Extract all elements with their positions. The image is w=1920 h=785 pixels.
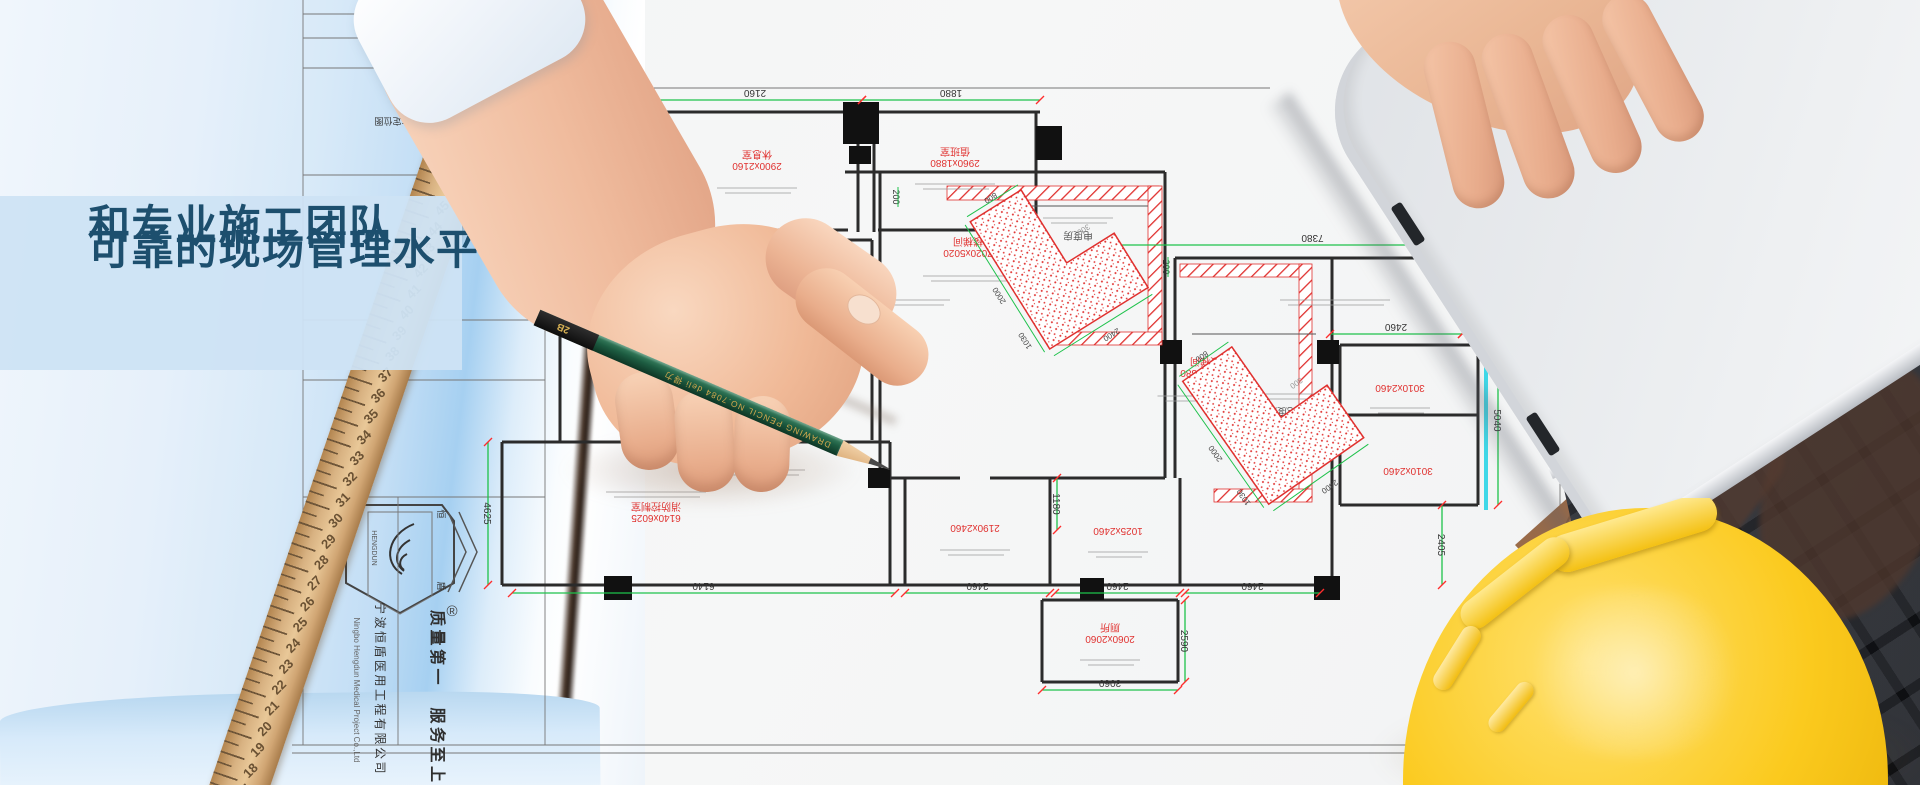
room-label: 2900x2160休息室 <box>732 148 782 171</box>
hatched-wall <box>1148 186 1162 344</box>
dimension-label: 7380 <box>1301 232 1324 243</box>
vertical-slogan-char: 量 <box>428 629 446 645</box>
title-block-text: Ningbo Hengdun Medical Project Co.,Ltd <box>352 618 361 763</box>
headline-line-2: 和专业施工团队 <box>88 196 393 256</box>
vertical-slogan-char: 工 <box>373 689 387 701</box>
column <box>1160 340 1182 364</box>
dimension-label: 2590 <box>1178 630 1189 653</box>
vertical-slogan-char: 一 <box>428 668 445 684</box>
dimension-label: 1180 <box>1050 493 1061 515</box>
dimension-label: 3060 <box>1098 677 1121 688</box>
room-label: 2960x1880值班室 <box>930 145 980 168</box>
title-block-text: ® <box>446 603 457 620</box>
dimension-label: 2460 <box>1106 580 1129 591</box>
column <box>1080 578 1104 600</box>
title-block-text: 盾 <box>436 581 446 590</box>
vertical-slogan-char: 宁 <box>373 602 388 614</box>
dimension-label: 1880 <box>939 87 962 98</box>
column <box>604 576 632 600</box>
hatched-wall <box>1180 264 1310 277</box>
dimension-label: 200 <box>891 189 901 204</box>
column <box>1036 126 1062 160</box>
vertical-slogan-char: 医 <box>373 660 387 672</box>
column <box>843 102 879 144</box>
dimension-label: 2160 <box>743 87 766 98</box>
stair-dimension: 2000 <box>1206 443 1224 463</box>
vertical-slogan-char: 司 <box>373 761 387 773</box>
vertical-slogan-char: 限 <box>373 732 387 744</box>
vertical-slogan-char: 质 <box>428 610 447 626</box>
dimension-label: 6140 <box>692 580 715 591</box>
hengdun-logo <box>346 505 477 614</box>
title-block-text: HENGDUN <box>370 530 377 565</box>
dimension-label: 2460 <box>1241 580 1264 591</box>
dimension-label: 200 <box>1161 259 1171 274</box>
title-block-text: 恒 <box>436 509 447 518</box>
room-label: 1025x2460 <box>1093 525 1143 536</box>
keyboard-keys: `1234567890-=deletetabQWERTYUIOP[]\capsA… <box>1718 0 1920 415</box>
stair-dimension: 2400 <box>1319 478 1339 496</box>
vertical-slogan-char: 至 <box>428 746 446 762</box>
stair-dimension: 1030 <box>1016 330 1033 350</box>
room-label: 2190x2460 <box>950 522 1000 533</box>
vertical-slogan-char: 盾 <box>373 645 387 657</box>
vertical-slogan-char: 程 <box>373 703 388 715</box>
vertical-slogan-char: 有 <box>373 718 387 730</box>
room-label: 3010x2460 <box>1375 382 1425 393</box>
hatched-wall <box>947 186 1159 200</box>
hero-text-panel: 可靠的现场管理水平 和专业施工团队 <box>0 196 462 370</box>
column <box>1314 576 1340 600</box>
staircase: 800200010302400300 <box>945 148 1161 381</box>
dimension-label: 2460 <box>966 580 989 591</box>
column <box>849 146 871 164</box>
helmet-highlight <box>1515 588 1755 758</box>
vertical-slogan-char: 第 <box>428 649 447 665</box>
dimension-label: 4625 <box>481 502 492 525</box>
vertical-slogan-char: 上 <box>428 766 446 782</box>
vertical-slogan-char: 恒 <box>373 631 387 643</box>
staircase: 800200010302400300 <box>1157 303 1378 536</box>
vertical-slogan-char: 务 <box>428 727 447 744</box>
vertical-slogan-char: 服 <box>428 707 446 724</box>
room-label: 3010x2460 <box>1383 465 1433 476</box>
room-label: 2060x2060厕所 <box>1085 621 1135 644</box>
vertical-slogan-char: 用 <box>373 674 387 686</box>
vertical-slogan-char: 公 <box>373 747 387 759</box>
vertical-slogan-char: 波 <box>373 616 387 628</box>
hero-banner-scene: 2960216018807380246024061402460246024603… <box>0 0 1920 785</box>
safety-helmet <box>1395 498 1900 785</box>
column <box>1317 340 1339 364</box>
